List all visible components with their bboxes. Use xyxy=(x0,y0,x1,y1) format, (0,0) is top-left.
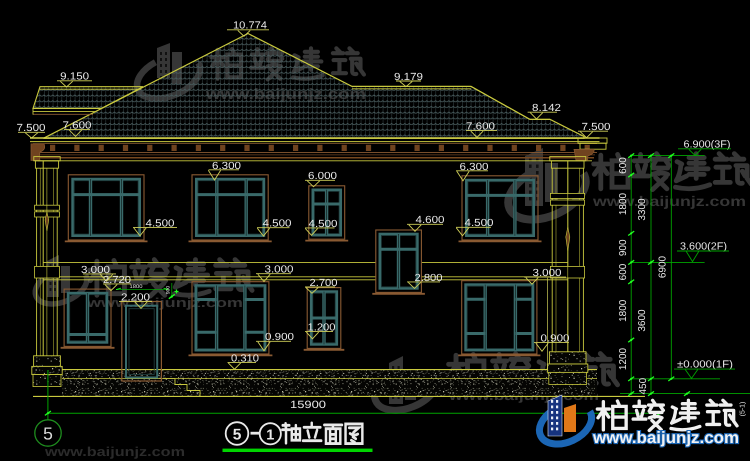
svg-text:15900: 15900 xyxy=(290,399,326,411)
svg-text:450: 450 xyxy=(638,377,649,394)
svg-text:1200: 1200 xyxy=(618,347,629,370)
svg-text:1800: 1800 xyxy=(618,299,629,322)
svg-text:900: 900 xyxy=(166,286,172,295)
svg-text:3300: 3300 xyxy=(637,198,648,221)
svg-text:www.baijunjz.com: www.baijunjz.com xyxy=(592,429,739,447)
svg-text:5: 5 xyxy=(233,426,242,443)
svg-text:5: 5 xyxy=(43,424,53,444)
svg-text:3600: 3600 xyxy=(637,309,648,332)
svg-text:1: 1 xyxy=(266,427,274,443)
svg-text:www.baijunjz.com: www.baijunjz.com xyxy=(592,193,746,209)
svg-text:600: 600 xyxy=(618,263,629,280)
svg-text:1800: 1800 xyxy=(130,284,143,290)
svg-text:6900: 6900 xyxy=(658,255,669,278)
svg-text:900: 900 xyxy=(618,239,629,256)
svg-text:(5-1): (5-1) xyxy=(739,402,747,417)
svg-text:600: 600 xyxy=(618,157,629,174)
svg-text:www.baijunjz.com: www.baijunjz.com xyxy=(44,444,185,459)
svg-text:1800: 1800 xyxy=(618,192,629,215)
svg-text:www.baijunjz.com: www.baijunjz.com xyxy=(86,295,243,310)
